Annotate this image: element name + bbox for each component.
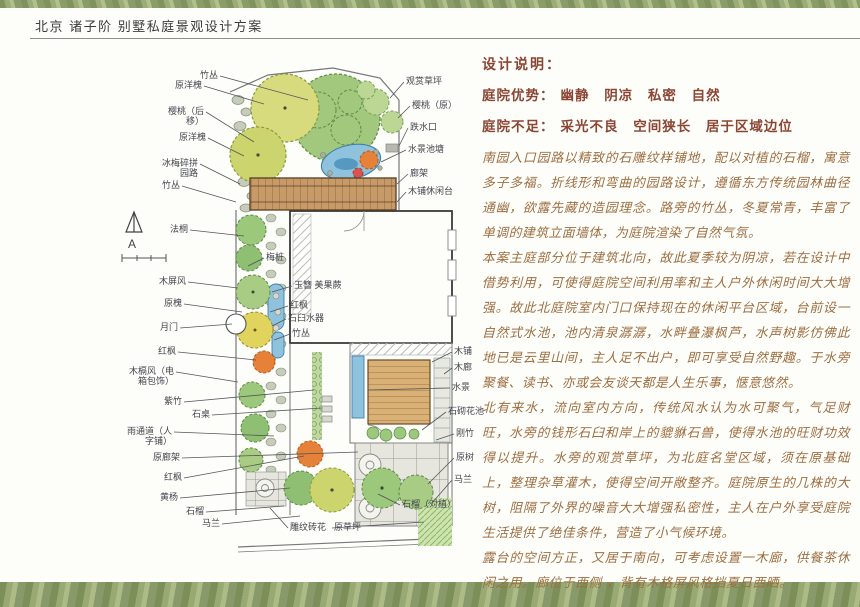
plan-label: 原廊架 — [153, 452, 180, 462]
plan-label: 石砌花池 — [448, 406, 484, 416]
plan-label: 石榴（对植） — [402, 499, 456, 509]
plan-labels-layer: 竹丛原洋槐樱桃（后移）原洋槐冰梅碎拼园路竹丛法桐木屏风原槐月门红枫木槅风（电箱包… — [118, 60, 470, 575]
plan-label: 竹丛 — [162, 180, 180, 190]
disadvantages-value: 采光不良 空间狭长 居于区域边位 — [561, 119, 793, 135]
plan-label: 石榴 — [186, 506, 204, 516]
advantages-label: 庭院优势： — [482, 88, 555, 104]
plan-label: 石臼水器 — [288, 313, 324, 323]
plan-label: 原草坪 — [334, 522, 361, 532]
notes-paragraph: 北有来水，流向室内方向，传统风水认为水可聚气，气足财旺，水旁的钱形石臼和岸上的貔… — [482, 396, 850, 546]
page-title: 北京 诸子阶 别墅私庭景观设计方案 — [35, 16, 263, 35]
plan-label: 木槅风（电箱包饰） — [122, 366, 174, 386]
plan-label: 原洋槐 — [175, 80, 202, 90]
plan-label: 冰梅碎拼园路 — [154, 158, 198, 178]
notes-heading: 设计说明： — [482, 54, 850, 74]
plan-label: 木廊 — [454, 362, 472, 372]
plan-label: 马兰 — [454, 474, 472, 484]
site-plan: A 竹丛原洋槐樱桃（后移）原洋槐冰梅碎拼园路竹丛法桐木屏风原槐月门红枫木槅风（电… — [118, 60, 470, 575]
plan-label: 原洋槐 — [179, 132, 206, 142]
plan-label: 木铺休闲台 — [408, 186, 453, 196]
plan-label: 樱桃（后移） — [168, 106, 204, 126]
plan-label: 红枫 — [164, 472, 182, 482]
top-texture-band — [0, 0, 860, 8]
title-divider — [30, 38, 860, 39]
plan-label: 竹丛 — [292, 328, 310, 338]
advantages-line: 庭院优势：幽静 阴凉 私密 自然 — [482, 84, 850, 104]
plan-label: 雨通道（人字铺） — [126, 426, 172, 446]
plan-label: 玉簪 美果蕨 — [294, 280, 342, 290]
plan-label: 黄杨 — [160, 492, 178, 502]
plan-label: 刚竹 — [456, 428, 474, 438]
disadvantages-line: 庭院不足：采光不良 空间狭长 居于区域边位 — [482, 115, 850, 135]
notes-paragraph: 本案主庭部分位于建筑北向，故此夏季较为阴凉，若在设计中借势利用，可使得庭院空间利… — [482, 246, 850, 396]
plan-label: 原树 — [456, 452, 474, 462]
plan-label: 梅桩 — [266, 252, 284, 262]
design-notes: 设计说明： 庭院优势：幽静 阴凉 私密 自然 庭院不足：采光不良 空间狭长 居于… — [482, 54, 850, 596]
plan-label: 竹丛 — [200, 70, 218, 80]
plan-label: 跌水口 — [410, 122, 437, 132]
plan-label: 水景 — [452, 382, 470, 392]
plan-label: 紫竹 — [164, 396, 182, 406]
plan-label: 木屏风 — [159, 276, 186, 286]
plan-label: 红枫 — [290, 300, 308, 310]
plan-label: 马兰 — [202, 518, 220, 528]
page: 北京 诸子阶 别墅私庭景观设计方案 — [0, 0, 860, 607]
plan-label: 红枫 — [158, 346, 176, 356]
advantages-value: 幽静 阴凉 私密 自然 — [561, 88, 721, 104]
plan-label: 木铺 — [454, 346, 472, 356]
notes-paragraph: 露台的空间方正，又居于南向，可考虑设置一木廊，供餐茶休闲之用。廊位于西侧 ，背有… — [482, 546, 850, 596]
plan-label: 廊架 — [410, 168, 428, 178]
plan-label: 水景池塘 — [408, 144, 444, 154]
plan-label: 雕纹砖花 — [290, 522, 326, 532]
plan-label: 樱桃（原） — [412, 100, 457, 110]
plan-label: 原槐 — [164, 298, 182, 308]
disadvantages-label: 庭院不足： — [482, 119, 555, 135]
plan-label: 法桐 — [170, 224, 188, 234]
plan-label: 月门 — [160, 322, 178, 332]
notes-paragraphs: 南园入口园路以精致的石雕纹样铺地，配以对植的石榴，寓意多子多福。折线形和弯曲的园… — [482, 146, 850, 596]
plan-label: 石桌 — [192, 409, 210, 419]
notes-paragraph: 南园入口园路以精致的石雕纹样铺地，配以对植的石榴，寓意多子多福。折线形和弯曲的园… — [482, 146, 850, 246]
plan-label: 观赏草坪 — [406, 76, 442, 86]
